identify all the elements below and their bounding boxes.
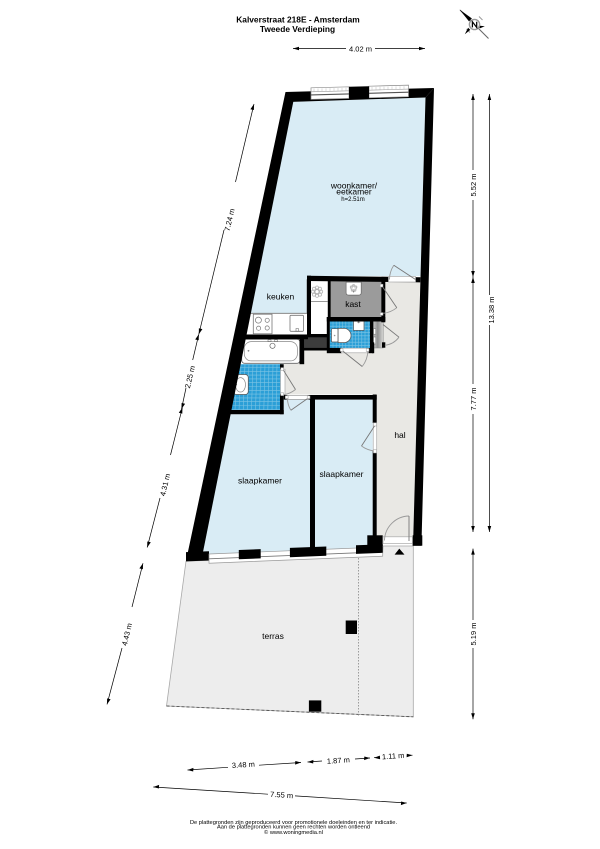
svg-text:1.87 m: 1.87 m: [327, 755, 350, 765]
svg-text:4.02 m: 4.02 m: [349, 44, 372, 53]
svg-text:hal: hal: [394, 430, 405, 440]
svg-text:7.77 m: 7.77 m: [469, 388, 478, 411]
svg-text:kast: kast: [345, 299, 361, 309]
svg-text:terras: terras: [262, 631, 284, 641]
svg-text:3.48 m: 3.48 m: [232, 760, 255, 770]
svg-text:13.38 m: 13.38 m: [487, 296, 496, 323]
svg-text:slaapkamer: slaapkamer: [238, 476, 282, 486]
svg-text:Tweede Verdieping: Tweede Verdieping: [260, 24, 335, 34]
svg-text:1.11 m: 1.11 m: [382, 751, 405, 761]
svg-text:7.55 m: 7.55 m: [270, 790, 293, 800]
svg-text:Kalverstraat 218E - Amsterdam: Kalverstraat 218E - Amsterdam: [236, 14, 360, 24]
svg-text:slaapkamer: slaapkamer: [320, 469, 364, 479]
svg-text:© www.woningmedia.nl: © www.woningmedia.nl: [264, 829, 323, 836]
svg-text:5.52 m: 5.52 m: [469, 174, 478, 197]
svg-text:keuken: keuken: [267, 292, 295, 302]
svg-text:5.19 m: 5.19 m: [469, 623, 478, 646]
svg-text:eetkamer: eetkamer: [336, 187, 372, 197]
svg-text:h=2.51m: h=2.51m: [341, 197, 365, 203]
